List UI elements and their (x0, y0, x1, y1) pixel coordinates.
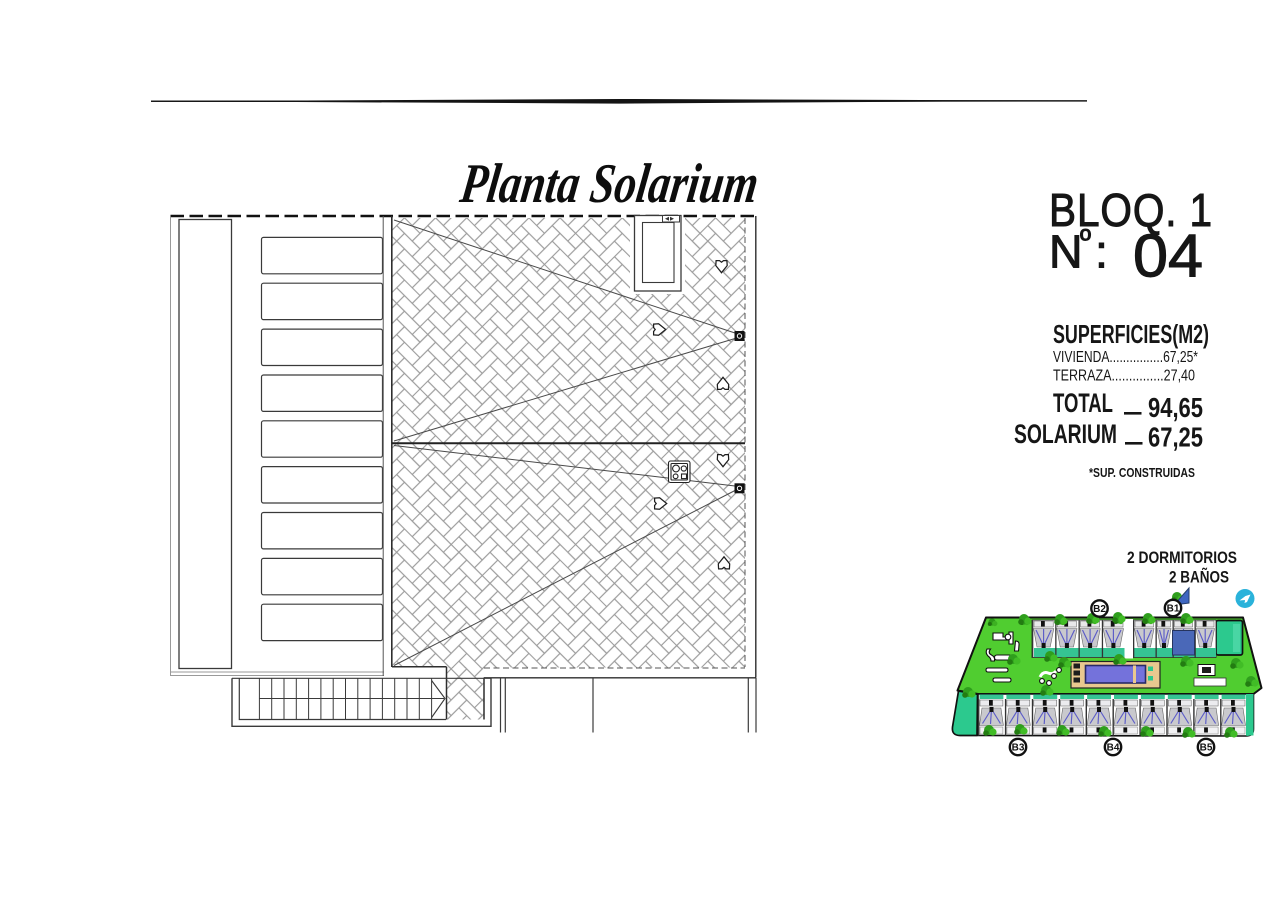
svg-text:TERRAZA...............27,40: TERRAZA...............27,40 (1053, 368, 1195, 385)
svg-text:B3: B3 (1012, 743, 1025, 754)
svg-text:SUPERFICIES(M2): SUPERFICIES(M2) (1053, 319, 1209, 349)
svg-text:B4: B4 (1107, 743, 1120, 754)
svg-text:N: N (1049, 226, 1083, 278)
svg-text:Planta Solarium: Planta Solarium (456, 153, 762, 215)
svg-text:2 BAÑOS: 2 BAÑOS (1169, 567, 1229, 587)
svg-text:B1: B1 (1167, 604, 1180, 615)
svg-text:º: º (1080, 224, 1091, 257)
svg-text:04: 04 (1133, 223, 1203, 290)
svg-text:67,25: 67,25 (1148, 422, 1203, 453)
svg-text:B5: B5 (1200, 743, 1213, 754)
svg-text:SOLARIUM: SOLARIUM (1014, 419, 1117, 449)
svg-text:B2: B2 (1093, 604, 1106, 615)
svg-text:*SUP. CONSTRUIDAS: *SUP. CONSTRUIDAS (1089, 465, 1195, 480)
svg-text:94,65: 94,65 (1148, 392, 1203, 423)
svg-text:2 DORMITORIOS: 2 DORMITORIOS (1127, 549, 1237, 567)
svg-text:VIVIENDA................67,25*: VIVIENDA................67,25* (1053, 349, 1198, 366)
svg-text:TOTAL: TOTAL (1053, 388, 1113, 418)
svg-text::: : (1095, 226, 1108, 278)
